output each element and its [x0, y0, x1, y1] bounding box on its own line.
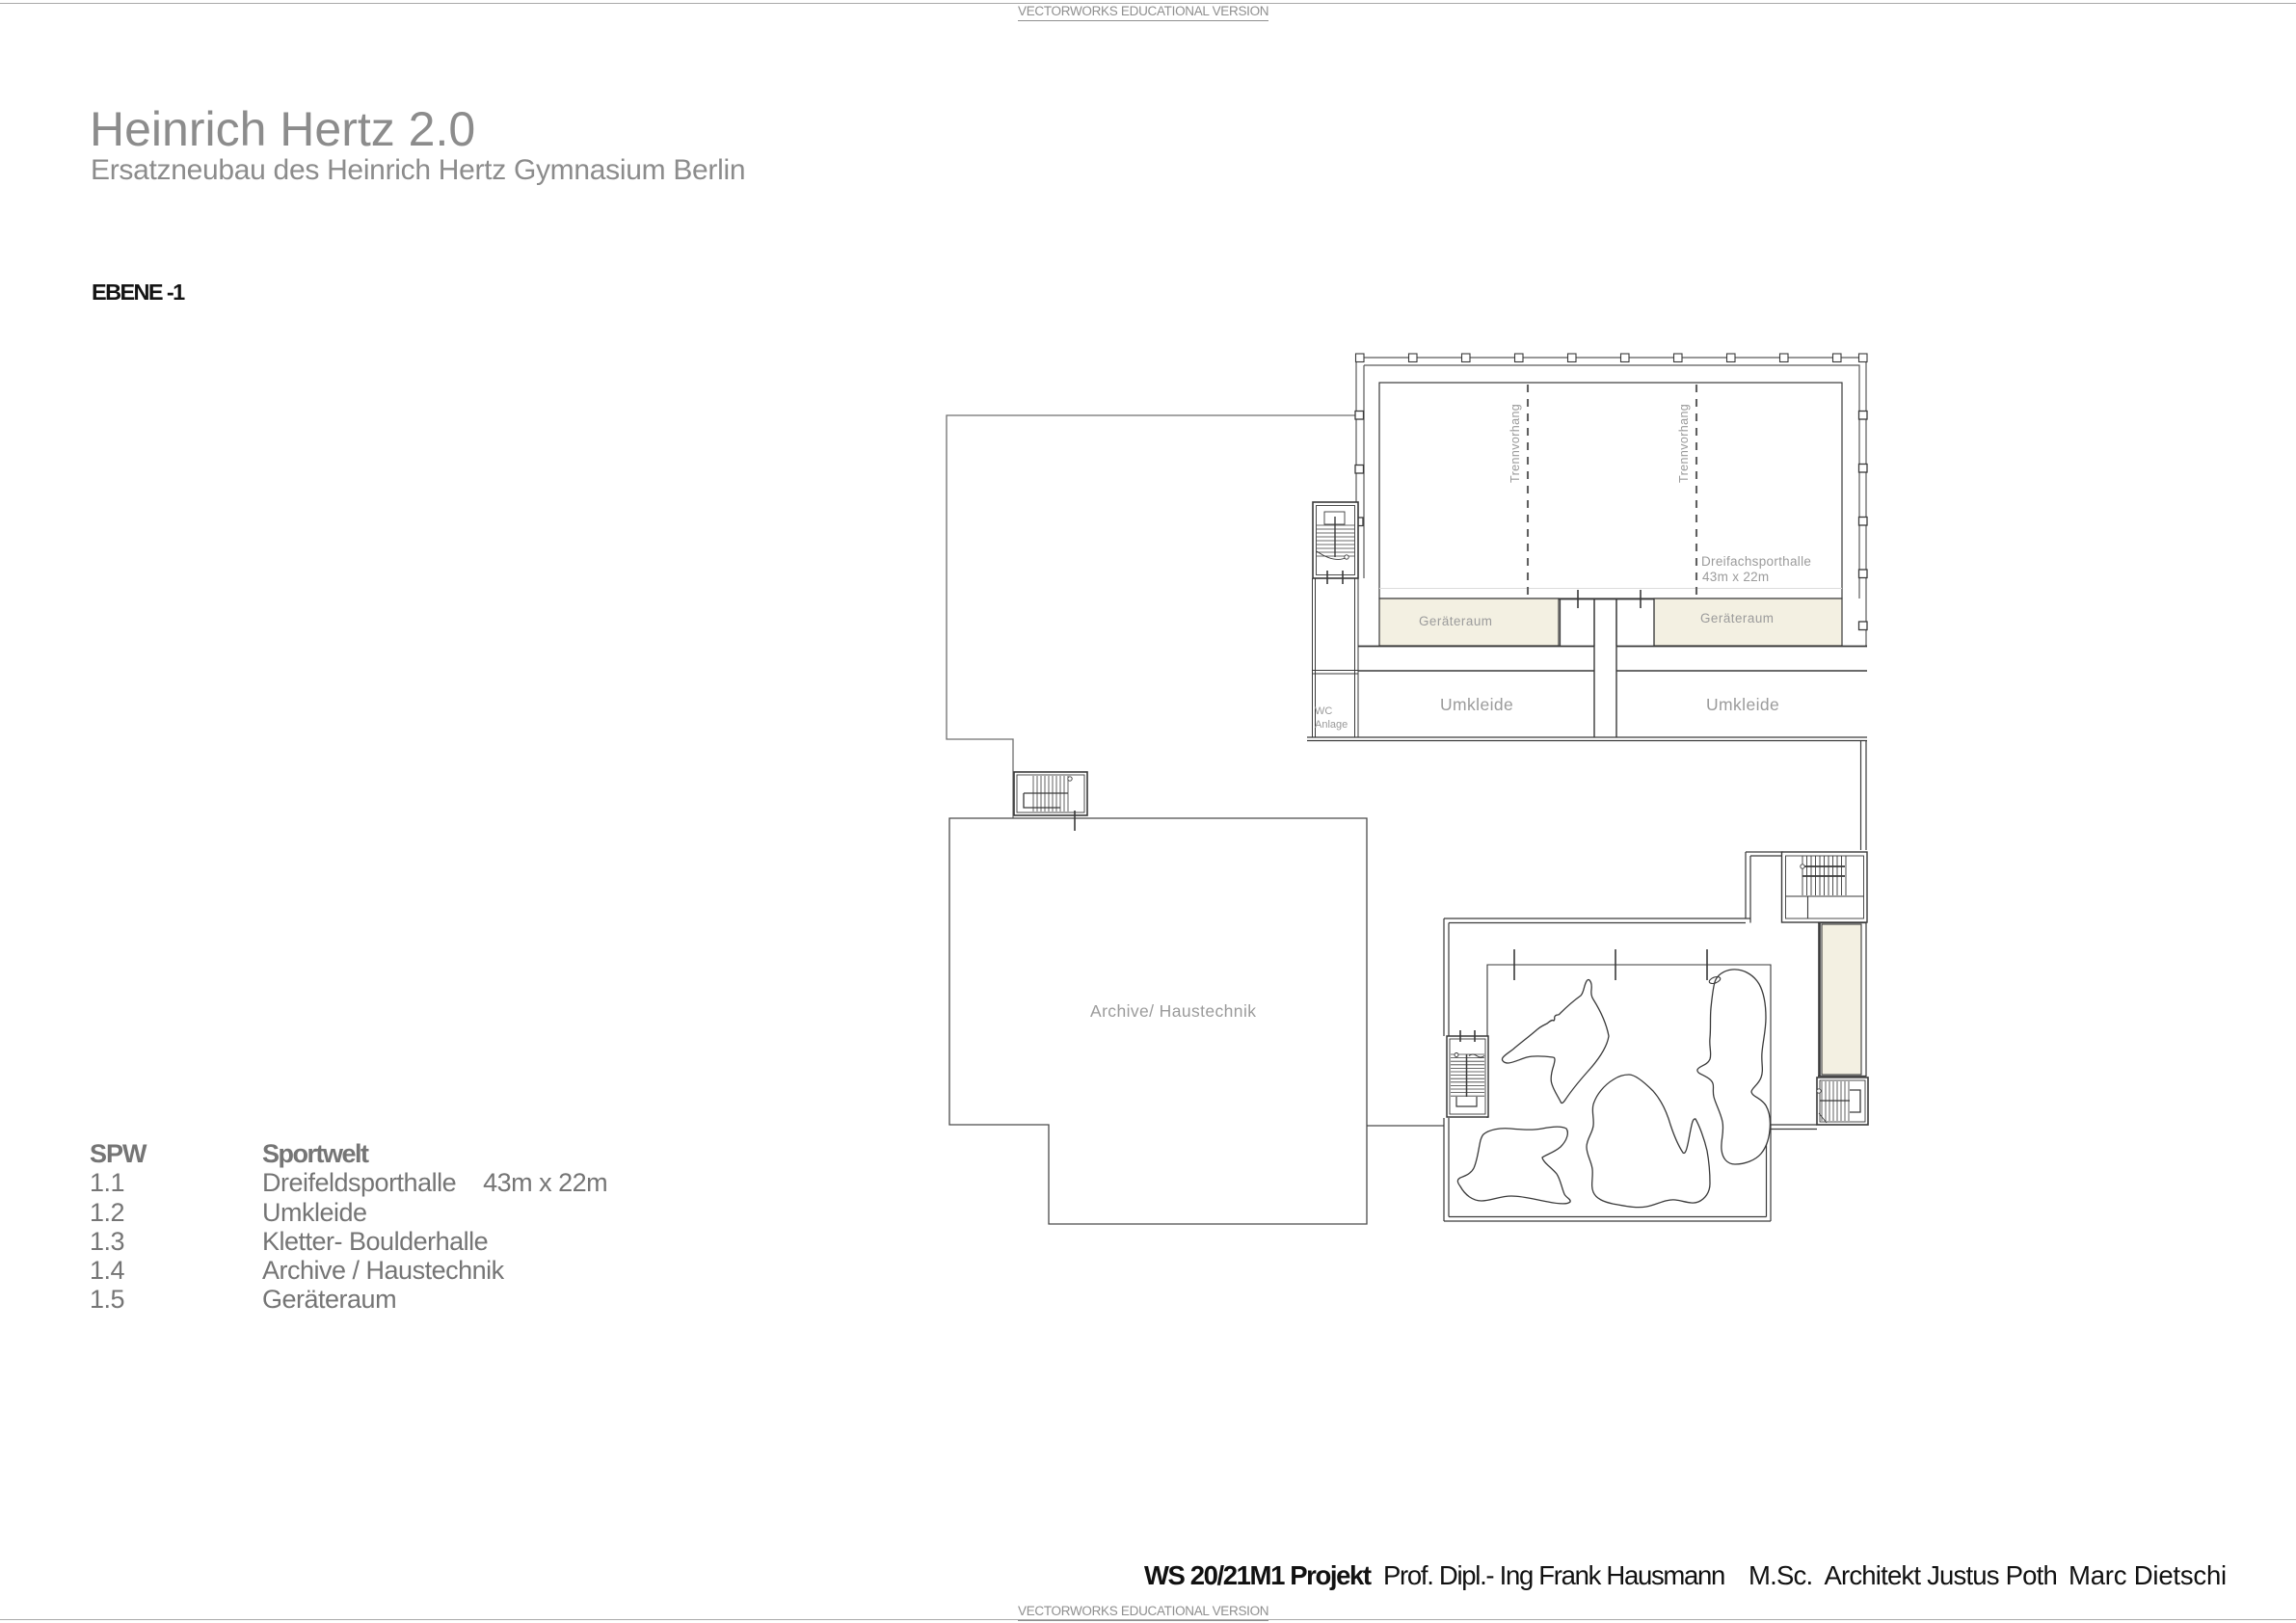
svg-text:Dreifachsporthalle: Dreifachsporthalle: [1701, 554, 1811, 569]
svg-text:Archive/ Haustechnik: Archive/ Haustechnik: [1090, 1001, 1256, 1021]
svg-text:WC: WC: [1315, 705, 1332, 717]
svg-text:43m x 22m: 43m x 22m: [1702, 570, 1769, 584]
svg-text:Geräteraum: Geräteraum: [1419, 614, 1492, 628]
svg-text:Umkleide: Umkleide: [1440, 695, 1513, 714]
svg-text:Trennvorhang: Trennvorhang: [1677, 404, 1691, 483]
svg-text:Trennvorhang: Trennvorhang: [1508, 404, 1522, 483]
svg-text:Umkleide: Umkleide: [1706, 695, 1779, 714]
svg-text:Geräteraum: Geräteraum: [1700, 611, 1774, 625]
svg-text:Anlage: Anlage: [1315, 719, 1348, 731]
